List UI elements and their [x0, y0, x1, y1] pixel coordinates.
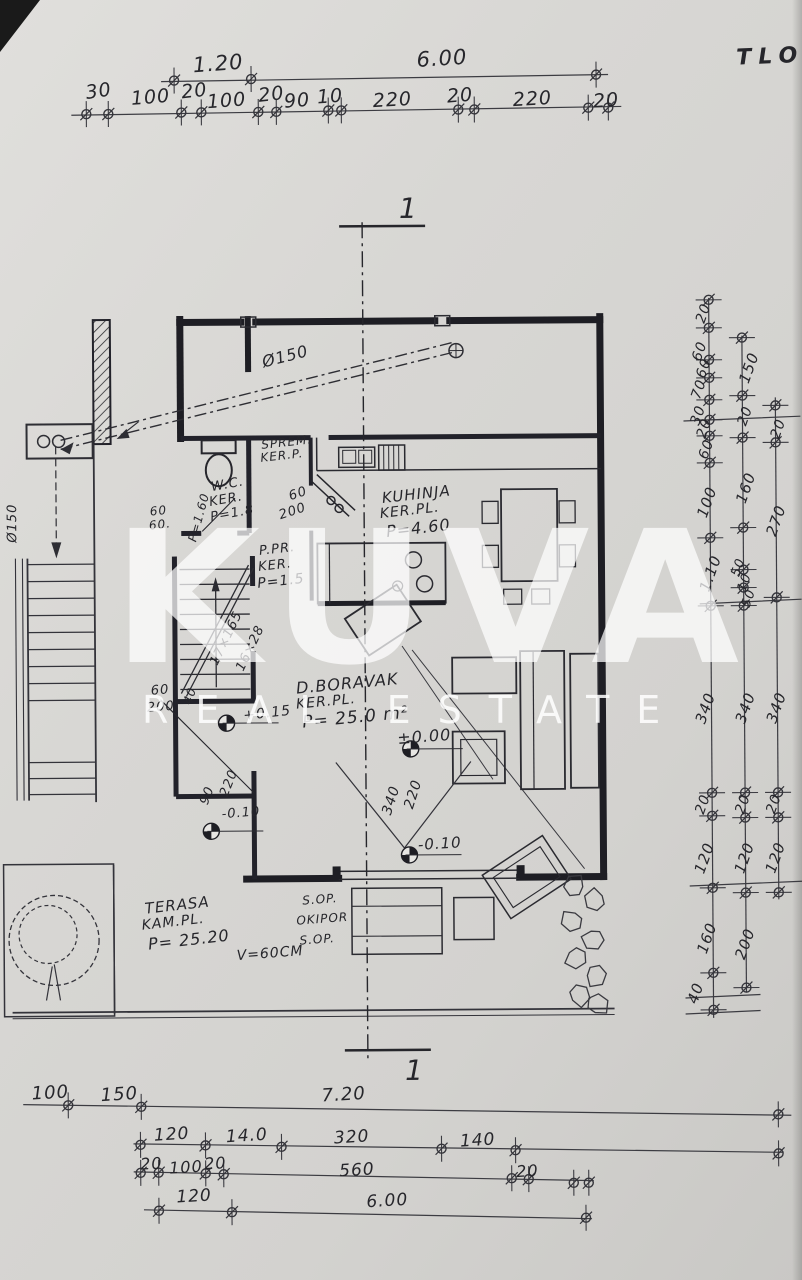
sofa-group — [452, 651, 599, 790]
top_dims-row1-0-label: 1.20 — [192, 50, 244, 78]
bottom_dims-row2-0-label: 120 — [153, 1124, 190, 1146]
bottom_dims-row3-2-label: 20 — [204, 1153, 227, 1173]
section-top-label: 1 — [399, 192, 418, 225]
top_dims-row2-3-label: 100 — [206, 88, 247, 113]
top_dims-row2-1-label: 100 — [130, 85, 171, 110]
levels-minus10_left-label: -0.10 — [221, 804, 261, 822]
scan-corner-artifact — [0, 0, 40, 52]
hatched-wall — [93, 320, 111, 444]
door-stubs — [333, 865, 525, 879]
kitchen-counter — [317, 436, 601, 471]
exterior-stairs — [15, 444, 96, 803]
bottom_dims-row3-1-label: 100 — [169, 1157, 204, 1178]
bottom_dims-row2-2-label: 320 — [333, 1126, 370, 1148]
top_dims-row2-5-label: 90 — [283, 89, 311, 113]
top_dims-row2-9-label: 220 — [512, 87, 553, 111]
bottom_dims-row1-2-label: 7.20 — [321, 1083, 366, 1107]
tree-icon — [9, 895, 100, 1001]
top_dims-row2-7-label: 220 — [372, 88, 413, 112]
window-frames — [241, 315, 520, 880]
bottom_dims-row1-1-label: 150 — [100, 1083, 139, 1106]
bottom_dims-row4-0-label: 120 — [176, 1185, 213, 1207]
stone-edge — [561, 875, 608, 1013]
dining-table — [482, 489, 576, 605]
annotations-sop2-label: S.OP. — [299, 931, 335, 948]
annotations-left60b-label: 60. — [148, 516, 172, 532]
floorplan-scan-layer: 1.206.0030100201002090102202022020TLO11Ø… — [0, 0, 802, 1280]
rotated-table — [345, 585, 421, 656]
annotations-sop1-label: S.OP. — [302, 891, 338, 908]
section-line — [339, 222, 431, 1059]
top_dims-row2-2-label: 20 — [180, 79, 208, 104]
top_dims-row2-8-label: 20 — [446, 84, 474, 108]
bottom_dims-row3-3-label: 560 — [339, 1159, 376, 1181]
levels-minus10_center-label: -0.10 — [417, 833, 462, 854]
bottom_dims-row3-0-label: 20 — [140, 1154, 163, 1174]
bottom_dims-row2-1-label: 14.0 — [225, 1125, 268, 1147]
top_dims-row2-6-label: 10 — [316, 85, 344, 109]
annotations-pipe_left-label: Ø150 — [5, 504, 20, 543]
annotations-stack200-label: 200 — [146, 699, 175, 716]
dimension-ticks — [55, 60, 794, 1234]
top_dims-row2-10-label: 20 — [592, 89, 620, 113]
pipe-arrow — [61, 442, 74, 454]
bottom_dims-row3-4-label: 20 — [516, 1161, 539, 1181]
bottom_dims-row1-0-label: 100 — [31, 1081, 70, 1104]
section-bottom-label: 1 — [405, 1054, 424, 1087]
top_dims-row2-0-label: 30 — [84, 78, 113, 104]
top_dims-row1-1-label: 6.00 — [416, 45, 468, 72]
top_dims-row2-4-label: 20 — [257, 82, 285, 107]
downpipe-arrow — [51, 542, 61, 558]
bottom_dims-row4-1-label: 6.00 — [366, 1190, 409, 1212]
bottom_dims-row2-3-label: 140 — [459, 1129, 496, 1151]
terrace-furniture — [352, 887, 494, 954]
scanned-floorplan-page: 1.206.0030100201002090102202022020TLO11Ø… — [0, 0, 802, 1280]
annotations-stack60-label: 60 — [150, 682, 170, 698]
page-edge-shadow — [792, 0, 802, 1280]
